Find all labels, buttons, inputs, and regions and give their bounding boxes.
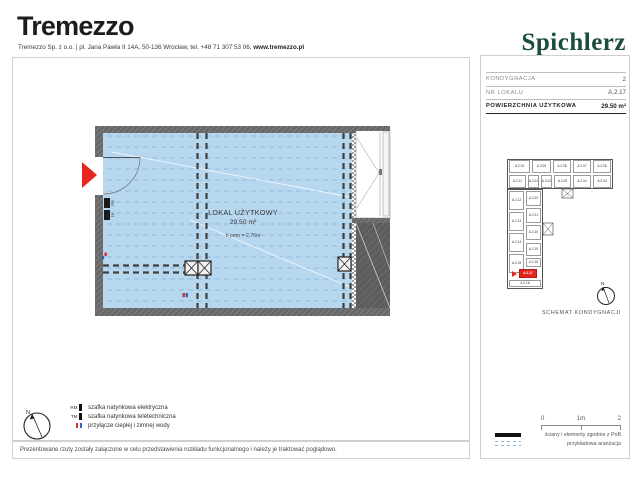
scale-bar: 0 1m 2 — [541, 416, 621, 429]
floorplan-sheet: { "header": { "brand": "Tremezzo", "addr… — [0, 0, 640, 480]
brand-logo: Tremezzo — [17, 11, 134, 42]
legend-item-electrical: RM szafka natynkowa elektryczna — [60, 403, 280, 412]
schematic-unit: A.2.20 — [526, 225, 541, 240]
project-logo: Spichlerz — [522, 29, 627, 57]
room-area-value: 29.50 m² — [230, 219, 258, 226]
schematic-unit: A.2.09 — [532, 160, 551, 173]
room-area — [100, 133, 352, 308]
schematic-unit: A.2.10 — [509, 160, 530, 173]
schematic-unit-highlighted: A.2.17 — [519, 269, 537, 278]
legend-label: szafka natynkowa teletechniczna — [88, 414, 176, 420]
schematic-unit: A.2.21 — [526, 208, 541, 223]
info-panel: KONDYGNACJA 2 NR LOKALU A.2.17 POWIERZCH… — [480, 55, 630, 459]
schematic-unit: A.2.19 — [526, 243, 541, 256]
legend-item-walls: ściany i elementy zgodnie z PnB — [495, 430, 621, 439]
schematic-unit: A.2.04 — [573, 175, 591, 188]
legend-item-arrangement: przykładowa aranżacja — [495, 439, 621, 448]
window-glazing — [352, 130, 390, 223]
floor-schematic: A.2.10A.2.09A.2.08A.2.07A.2.06A.2.11A.2.… — [507, 159, 613, 289]
address-text: Tremezzo Sp. z o.o. | pl. Jana Pawła II … — [18, 44, 253, 51]
table-row: KONDYGNACJA 2 — [486, 73, 626, 87]
table-row: POWIERZCHNIA UŻYTKOWA 29.50 m² — [486, 100, 626, 114]
schematic-unit: A.2.18 — [526, 258, 541, 267]
schematic-unit: A.2.13 — [509, 212, 524, 231]
symbols-legend: RM szafka natynkowa elektryczna TM szafk… — [60, 403, 280, 430]
table-row: NR LOKALU A.2.17 — [486, 87, 626, 101]
legend-label: szafka natynkowa elektryczna — [88, 405, 168, 411]
compass-north-label: N — [601, 281, 604, 286]
highlighted-unit-arrow-icon — [512, 271, 517, 277]
schematic-unit: A.2.02 — [541, 175, 552, 188]
water-icon — [60, 423, 82, 428]
tm-cabinet-label: TM — [111, 212, 115, 217]
room-title: LOKAL UŻYTKOWY — [208, 208, 278, 217]
rm-cabinet-icon: RM — [60, 404, 82, 411]
schematic-unit: A.2.08 — [553, 160, 571, 173]
company-address: Tremezzo Sp. z o.o. | pl. Jana Pawła II … — [18, 44, 304, 51]
schematic-units: A.2.10A.2.09A.2.08A.2.07A.2.06A.2.11A.2.… — [507, 159, 613, 289]
adjacent-structure — [352, 223, 390, 308]
disclaimer: Prezentowane rzuty zostały załączone w c… — [12, 441, 470, 459]
schematic-unit: A.2.14 — [509, 233, 524, 252]
legend-item-teletech: TM szafka natynkowa teletechniczna — [60, 412, 280, 421]
schematic-unit: A.2.07 — [573, 160, 591, 173]
entrance-arrow-icon — [82, 162, 97, 188]
legend-item-water: przyłącze ciepłej i zimnej wody — [60, 421, 280, 430]
schematic-unit: A.2.03 — [593, 175, 611, 188]
room-height-note: h pom = 2,75m — [226, 233, 261, 239]
website-link[interactable]: www.tremezzo.pl — [253, 44, 304, 51]
schematic-caption: SCHEMAT KONDYGNACJI — [483, 310, 621, 316]
schematic-unit: A.2.22 — [526, 191, 541, 206]
compass-north-label: N — [26, 410, 30, 416]
tm-cabinet-icon: TM — [60, 413, 82, 420]
legend-label: przyłącze ciepłej i zimnej wody — [88, 423, 170, 429]
schematic-unit: A.2.06 — [593, 160, 611, 173]
dashed-arrangement-icon — [495, 441, 521, 446]
schematic-unit: A.2.16 — [509, 280, 541, 287]
north-compass: N — [19, 406, 55, 442]
schematic-compass: N — [593, 278, 619, 310]
plan-legend: ściany i elementy zgodnie z PnB przykład… — [495, 430, 621, 448]
schematic-unit: A.2.01 — [528, 175, 539, 188]
schematic-unit: A.2.05 — [554, 175, 571, 188]
rm-cabinet-label: RM — [111, 200, 115, 205]
wall-solid-icon — [495, 433, 521, 437]
floor-plan-drawing: RM TM LOKAL UŻYTKOWY 29.50 m² h pom = 2,… — [80, 124, 404, 320]
schematic-unit: A.2.11 — [509, 175, 526, 188]
schematic-unit: A.2.12 — [509, 191, 524, 210]
unit-info-table: KONDYGNACJA 2 NR LOKALU A.2.17 POWIERZCH… — [486, 72, 626, 114]
